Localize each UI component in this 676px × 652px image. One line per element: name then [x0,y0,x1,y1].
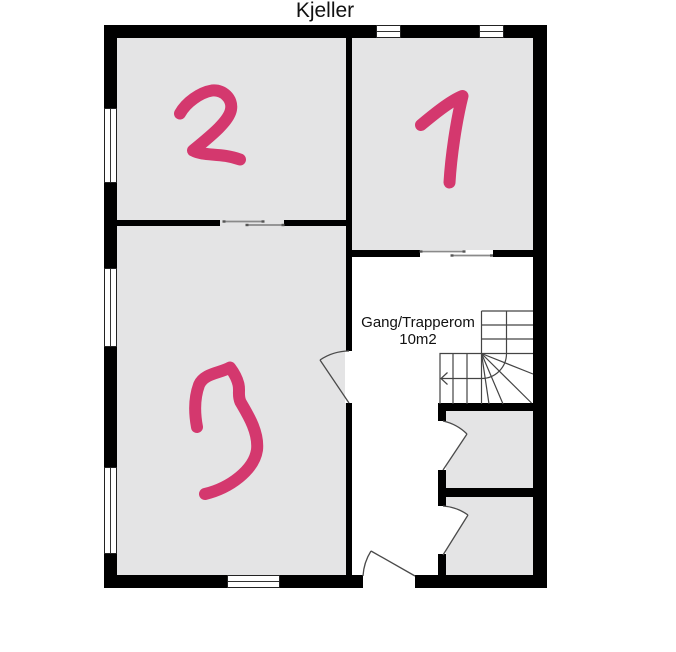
svg-text:Kjeller: Kjeller [296,0,354,22]
svg-text:Gang/Trapperom: Gang/Trapperom [361,314,475,331]
svg-text:10m2: 10m2 [399,331,437,348]
